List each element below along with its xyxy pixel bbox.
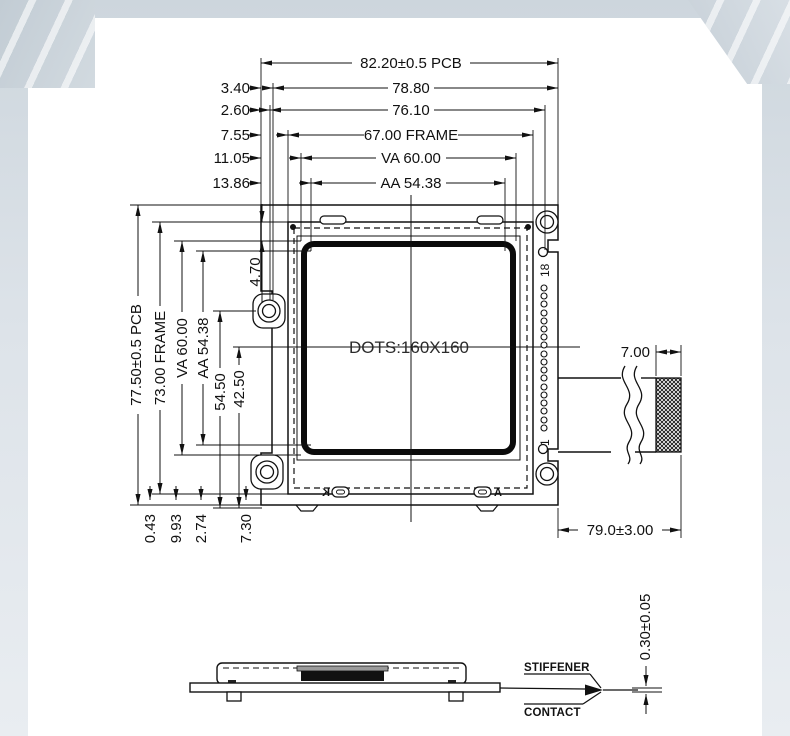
page: DOTS:160X160 K A (0, 0, 790, 736)
break-line (622, 366, 631, 464)
dim-contact-width: 7.00 (621, 344, 650, 361)
offset-9-93: 9.93 (168, 514, 185, 543)
side-foot (449, 692, 463, 701)
offset-2-60: 2.60 (221, 102, 250, 119)
dim-thickness: 0.30±0.05 (637, 594, 654, 661)
side-polarizer (297, 666, 388, 671)
anode-label: A (494, 487, 502, 499)
dim-54-50: 54.50 (212, 373, 229, 411)
pcb-bottom-tab (296, 505, 318, 511)
pin-top-label: 18 (538, 263, 552, 277)
contact-strip (656, 378, 681, 452)
offset-3-40: 3.40 (221, 80, 250, 97)
technical-drawing: DOTS:160X160 K A (0, 0, 790, 736)
offset-7-55: 7.55 (221, 127, 250, 144)
offset-13-86: 13.86 (212, 175, 250, 192)
frame-slot (477, 216, 503, 224)
pin-bottom-label: 1 (538, 439, 552, 446)
cathode-label: K (322, 487, 330, 499)
side-pcb (190, 683, 500, 692)
dim-aa-width: AA 54.38 (381, 175, 442, 192)
dim-76-10: 76.10 (392, 102, 430, 119)
dim-pcb-height: 77.50±0.5 PCB (128, 304, 145, 406)
backlight-pad (474, 487, 491, 497)
dots-label: DOTS:160X160 (349, 338, 469, 357)
pcb-bottom-tab (476, 505, 498, 511)
dim-pcb-width: 82.20±0.5 PCB (360, 55, 462, 72)
dim-tail-length: 79.0±3.00 (587, 522, 654, 539)
offset-2-74: 2.74 (193, 514, 210, 543)
side-tail (500, 688, 585, 689)
flex-cable (558, 366, 681, 464)
side-glass (301, 671, 384, 681)
contact-label: CONTACT (524, 707, 581, 719)
dim-frame-height: 73.00 FRAME (152, 311, 169, 405)
break-line (634, 366, 643, 464)
side-view: STIFFENER CONTACT 0.30±0.05 (190, 594, 662, 719)
stiffener-label: STIFFENER (524, 662, 590, 674)
offset-11-05: 11.05 (214, 150, 250, 167)
dim-va-width: VA 60.00 (381, 150, 441, 167)
frame-corner-dot (290, 224, 296, 230)
dim-va-height: VA 60.00 (174, 318, 191, 378)
dim-42-50: 42.50 (231, 370, 248, 408)
dim-frame-width: 67.00 FRAME (364, 127, 458, 144)
frame-corner-dot (525, 224, 531, 230)
dim-4-70: 4.70 (247, 257, 264, 286)
dim-78-80: 78.80 (392, 80, 430, 97)
front-view: DOTS:160X160 K A (233, 195, 580, 522)
backlight-pad (332, 487, 349, 497)
dim-aa-height: AA 54.38 (195, 318, 212, 379)
frame-slot (320, 216, 346, 224)
offset-7-30: 7.30 (238, 514, 255, 543)
offset-0-43: 0.43 (142, 514, 159, 543)
side-foot (227, 692, 241, 701)
